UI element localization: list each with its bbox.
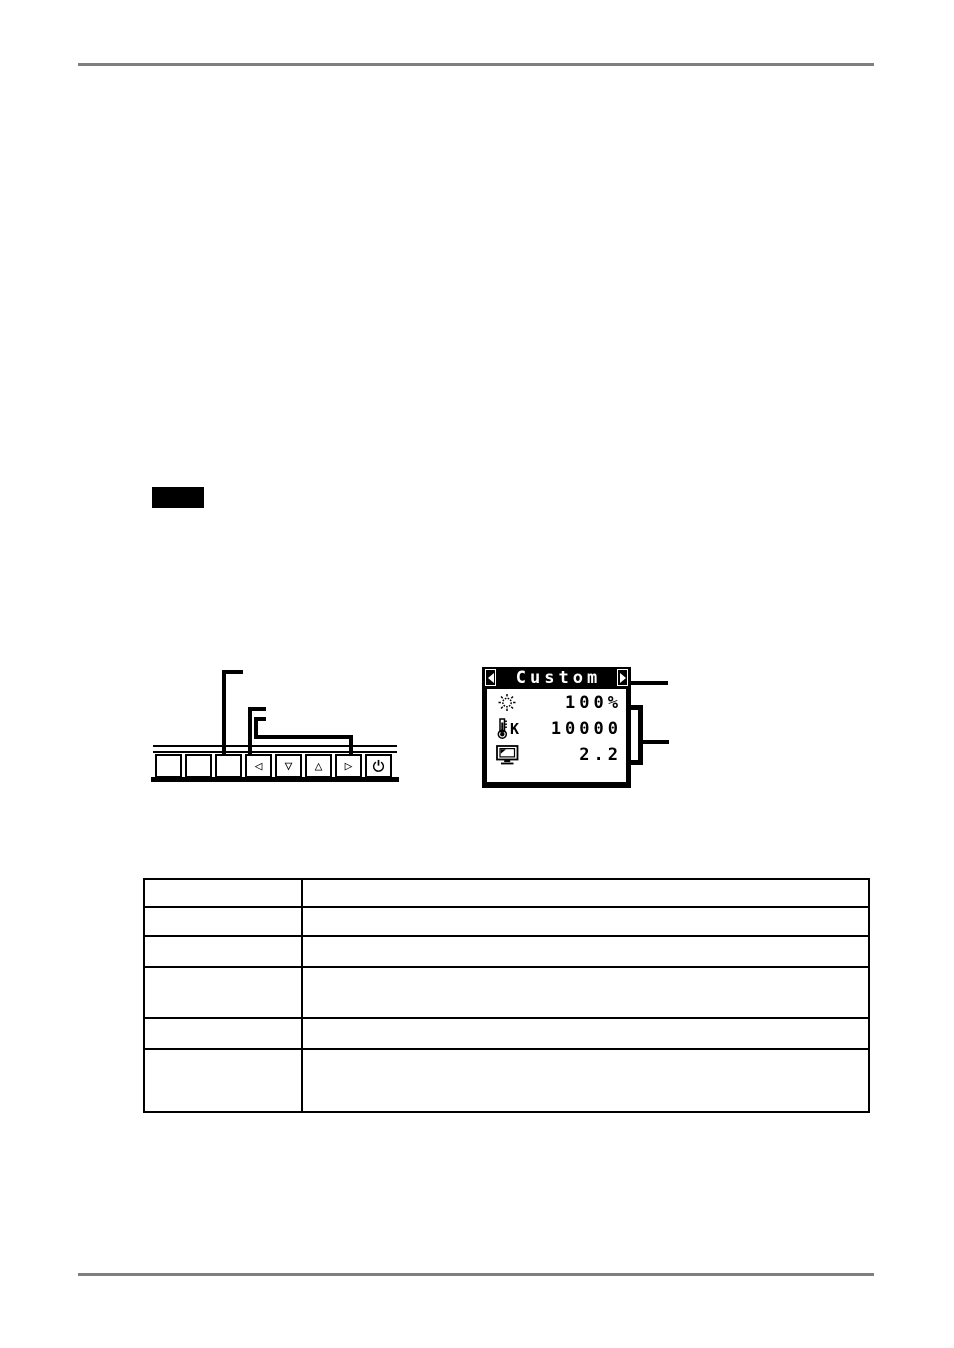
callout-line [254, 735, 353, 739]
temperature-icon [496, 718, 509, 739]
down-arrow-button[interactable]: ▽ [275, 754, 302, 778]
manual-page: ◁ ▽ △ ▷ Custom [0, 0, 954, 1348]
table-cell [303, 1050, 868, 1111]
gamma-icon [496, 745, 519, 765]
osd-row-temperature: K 10000 [487, 716, 626, 741]
bezel-line [153, 745, 397, 747]
brightness-value: 100% [565, 693, 622, 713]
blank-button-3[interactable] [215, 754, 242, 778]
osd-bracket-callout-line [643, 740, 669, 744]
table-cell [303, 937, 868, 966]
temperature-unit: K [510, 720, 519, 738]
table-cell [145, 1050, 303, 1111]
settings-table [143, 878, 870, 1113]
osd-body: 100% K 10000 [487, 689, 626, 782]
table-row [145, 880, 868, 908]
left-arrow-button[interactable]: ◁ [245, 754, 272, 778]
table-cell [145, 937, 303, 966]
table-row [145, 908, 868, 937]
callout-line [222, 670, 226, 755]
right-arrow-button[interactable]: ▷ [335, 754, 362, 778]
note-badge [152, 487, 204, 508]
right-triangle-icon [620, 673, 626, 683]
up-arrow-button[interactable]: △ [305, 754, 332, 778]
control-button-row: ◁ ▽ △ ▷ [155, 754, 392, 778]
osd-row-gamma: 2.2 [487, 742, 626, 767]
blank-button-2[interactable] [185, 754, 212, 778]
osd-next-arrow[interactable] [617, 669, 628, 686]
temperature-value: 10000 [551, 719, 622, 739]
top-rule [78, 63, 874, 66]
bottom-rule [78, 1273, 874, 1276]
table-cell [303, 1019, 868, 1048]
osd-row-brightness: 100% [487, 690, 626, 715]
table-cell [145, 968, 303, 1017]
power-icon [371, 759, 386, 774]
table-row [145, 1019, 868, 1050]
table-cell [303, 908, 868, 935]
osd-title: Custom [512, 668, 601, 688]
table-row [145, 1050, 868, 1111]
osd-bracket-vertical [638, 705, 643, 765]
table-cell [303, 968, 868, 1017]
callout-line [248, 707, 252, 755]
brightness-icon [496, 693, 518, 712]
blank-button-1[interactable] [155, 754, 182, 778]
table-row [145, 968, 868, 1019]
gamma-value: 2.2 [579, 745, 622, 765]
table-cell [145, 880, 303, 906]
bezel-line [153, 751, 397, 753]
osd-bracket-bottom [630, 760, 643, 765]
osd-title-bar: Custom [482, 667, 631, 689]
osd-title-callout-line [630, 681, 668, 685]
table-cell [303, 880, 868, 906]
power-button[interactable] [365, 754, 392, 778]
osd-menu: Custom 100% [482, 667, 631, 788]
table-cell [145, 1019, 303, 1048]
left-triangle-icon [488, 673, 494, 683]
panel-base-bar [151, 777, 399, 782]
table-row [145, 937, 868, 968]
osd-prev-arrow[interactable] [485, 669, 496, 686]
table-cell [145, 908, 303, 935]
